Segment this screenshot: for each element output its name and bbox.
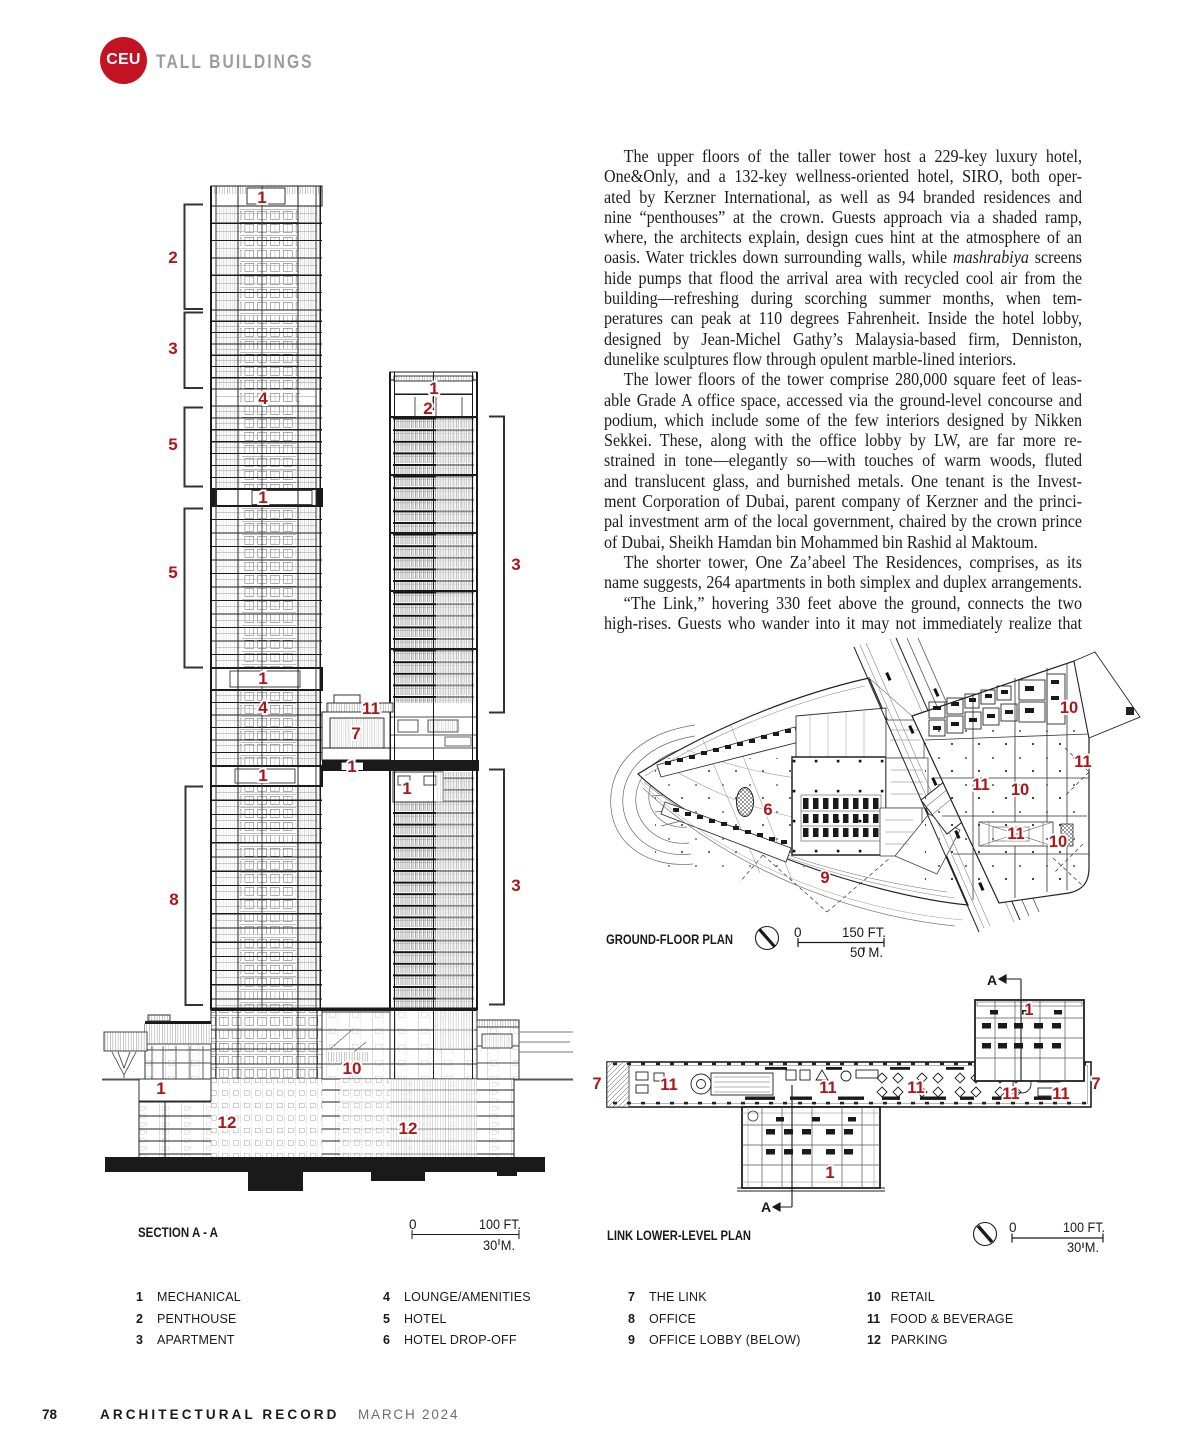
svg-text:8: 8: [169, 890, 178, 909]
svg-text:150 FT.: 150 FT.: [842, 925, 886, 940]
svg-text:12: 12: [218, 1113, 237, 1132]
svg-text:1: 1: [402, 779, 411, 798]
svg-text:7: 7: [351, 724, 360, 743]
svg-text:2: 2: [423, 399, 432, 418]
svg-text:11: 11: [907, 1079, 924, 1097]
svg-text:10: 10: [1049, 833, 1067, 851]
svg-text:A: A: [987, 972, 997, 988]
svg-text:4: 4: [258, 698, 268, 717]
svg-text:SECTION A - A: SECTION A - A: [138, 1225, 218, 1240]
svg-text:1: 1: [258, 669, 267, 688]
svg-text:11: 11: [362, 699, 380, 718]
svg-text:LINK LOWER-LEVEL PLAN: LINK LOWER-LEVEL PLAN: [607, 1228, 751, 1243]
svg-text:11: 11: [1007, 825, 1024, 843]
svg-text:1: 1: [347, 757, 356, 776]
svg-text:11: 11: [1002, 1085, 1019, 1103]
svg-text:2: 2: [168, 248, 177, 267]
svg-text:7: 7: [592, 1075, 601, 1093]
svg-text:10: 10: [343, 1059, 362, 1078]
svg-text:12: 12: [399, 1119, 418, 1138]
svg-text:11: 11: [972, 776, 989, 794]
svg-text:1: 1: [258, 766, 267, 785]
svg-text:11: 11: [660, 1076, 677, 1094]
svg-text:1: 1: [429, 379, 438, 398]
svg-text:0: 0: [794, 925, 802, 940]
svg-text:6: 6: [763, 801, 772, 819]
svg-text:11: 11: [819, 1079, 836, 1097]
svg-text:4: 4: [258, 389, 268, 408]
svg-text:1: 1: [825, 1164, 834, 1182]
svg-text:1: 1: [156, 1079, 165, 1098]
svg-text:100 FT.: 100 FT.: [479, 1217, 521, 1232]
svg-text:3: 3: [511, 876, 520, 895]
svg-text:5: 5: [168, 435, 177, 454]
svg-text:0: 0: [1009, 1220, 1017, 1235]
svg-text:A: A: [761, 1199, 771, 1215]
svg-text:0: 0: [409, 1217, 417, 1232]
svg-text:7: 7: [1091, 1075, 1100, 1093]
svg-text:1: 1: [258, 488, 267, 507]
svg-text:5: 5: [168, 563, 177, 582]
svg-text:11: 11: [1052, 1085, 1069, 1103]
svg-text:11: 11: [1074, 753, 1091, 771]
svg-text:3: 3: [511, 555, 520, 574]
svg-text:3: 3: [168, 339, 177, 358]
svg-text:10: 10: [1011, 781, 1029, 799]
svg-text:9: 9: [820, 869, 829, 887]
svg-text:10: 10: [1060, 699, 1078, 717]
svg-text:GROUND-FLOOR PLAN: GROUND-FLOOR PLAN: [606, 932, 733, 947]
svg-text:1: 1: [257, 188, 266, 207]
svg-text:50 M.: 50 M.: [850, 945, 883, 960]
svg-text:1: 1: [1024, 1001, 1033, 1019]
svg-text:100 FT.: 100 FT.: [1063, 1220, 1105, 1235]
